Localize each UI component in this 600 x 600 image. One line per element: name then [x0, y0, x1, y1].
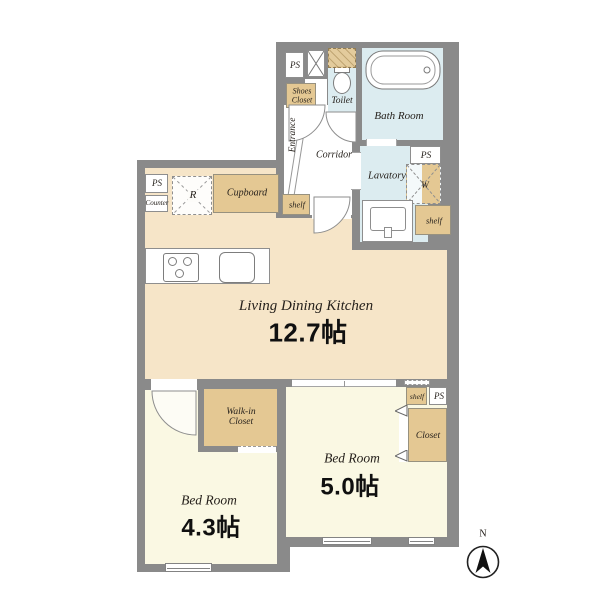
- sliding-door-bedroom-south: [292, 379, 396, 387]
- pipe-shaft-box: PS: [285, 52, 304, 78]
- shaft-x-box: [307, 50, 325, 77]
- bedroom-south-label: Bed Room: [324, 452, 380, 467]
- ps-label: PS: [152, 179, 162, 189]
- bedroom-ps-box: PS: [429, 387, 447, 405]
- washbasin-faucet-icon: [384, 227, 392, 238]
- door-arc-bedroom-west: [151, 390, 197, 436]
- kitchen-counter-unit: [145, 248, 270, 284]
- kitchen-ps-box: PS: [145, 174, 168, 193]
- window-bedroom-west: [165, 563, 212, 572]
- lavatory-shelf: shelf: [415, 205, 451, 235]
- washer-label: W: [421, 181, 429, 191]
- closet: Closet: [408, 408, 447, 462]
- north-label: N: [479, 530, 486, 541]
- north-compass-icon: [465, 544, 501, 580]
- washbasin-icon: [362, 200, 413, 242]
- refrigerator-label: R: [188, 190, 199, 202]
- lavatory-label: Lavatory: [368, 170, 406, 181]
- toilet-bowl-icon: [333, 72, 351, 94]
- ps-label: PS: [434, 392, 444, 402]
- door-arc-corridor: [313, 196, 351, 234]
- refrigerator-space: R: [172, 176, 212, 215]
- bedroom-shelf: shelf: [406, 387, 427, 405]
- bedroom-west-size: 4.3帖: [181, 508, 240, 543]
- pipe-shaft-label: PS: [290, 61, 300, 71]
- walk-in-closet-label: Walk-in Closet: [215, 407, 267, 428]
- lavatory-door: [351, 152, 361, 190]
- floor-plan: PS Shoes Closet Toilet Bath Room Lavator…: [0, 0, 600, 600]
- lavatory-ps-box: PS: [410, 146, 441, 164]
- stove-icon: [163, 253, 199, 282]
- cupboard-label: Cupboard: [227, 189, 267, 200]
- closet-label: Closet: [416, 431, 440, 441]
- bath-label: Bath Room: [374, 111, 423, 123]
- counter-label: Counter: [146, 200, 169, 208]
- cupboard: Cupboard: [213, 174, 279, 213]
- ldk-size: 12.7帖: [268, 313, 347, 350]
- entrance-label: Entrance: [288, 118, 298, 153]
- toilet-label: Toilet: [331, 96, 352, 106]
- toilet-overhead-cabinet: [328, 48, 356, 68]
- kitchen-counter-box: Counter: [145, 195, 168, 212]
- folding-door-triangle-icon: [395, 405, 408, 417]
- ps-label: PS: [421, 151, 432, 161]
- bedroom-west-label: Bed Room: [181, 494, 237, 509]
- vent-dashes: [404, 380, 430, 385]
- corridor-label: Corridor: [316, 151, 352, 162]
- folding-door-triangle-icon: [395, 450, 408, 462]
- shelf-label: shelf: [426, 216, 442, 225]
- bedroom-south-size: 5.0帖: [320, 467, 379, 502]
- window-bedroom-south-2: [408, 537, 435, 545]
- door-arc-toilet: [325, 111, 357, 143]
- corridor-shelf: shelf: [282, 194, 310, 215]
- sink-icon: [219, 252, 255, 283]
- walk-in-closet-opening: [238, 446, 276, 453]
- bathtub-icon: [365, 50, 441, 90]
- washer-space: W: [406, 164, 441, 204]
- shaft-x-icon: [308, 51, 324, 76]
- shelf-label: shelf: [289, 200, 305, 209]
- window-bedroom-south: [322, 537, 372, 545]
- shoes-closet-label: Shoes Closet: [287, 87, 317, 104]
- walk-in-closet: Walk-in Closet: [204, 389, 277, 446]
- shelf-label: shelf: [410, 393, 424, 401]
